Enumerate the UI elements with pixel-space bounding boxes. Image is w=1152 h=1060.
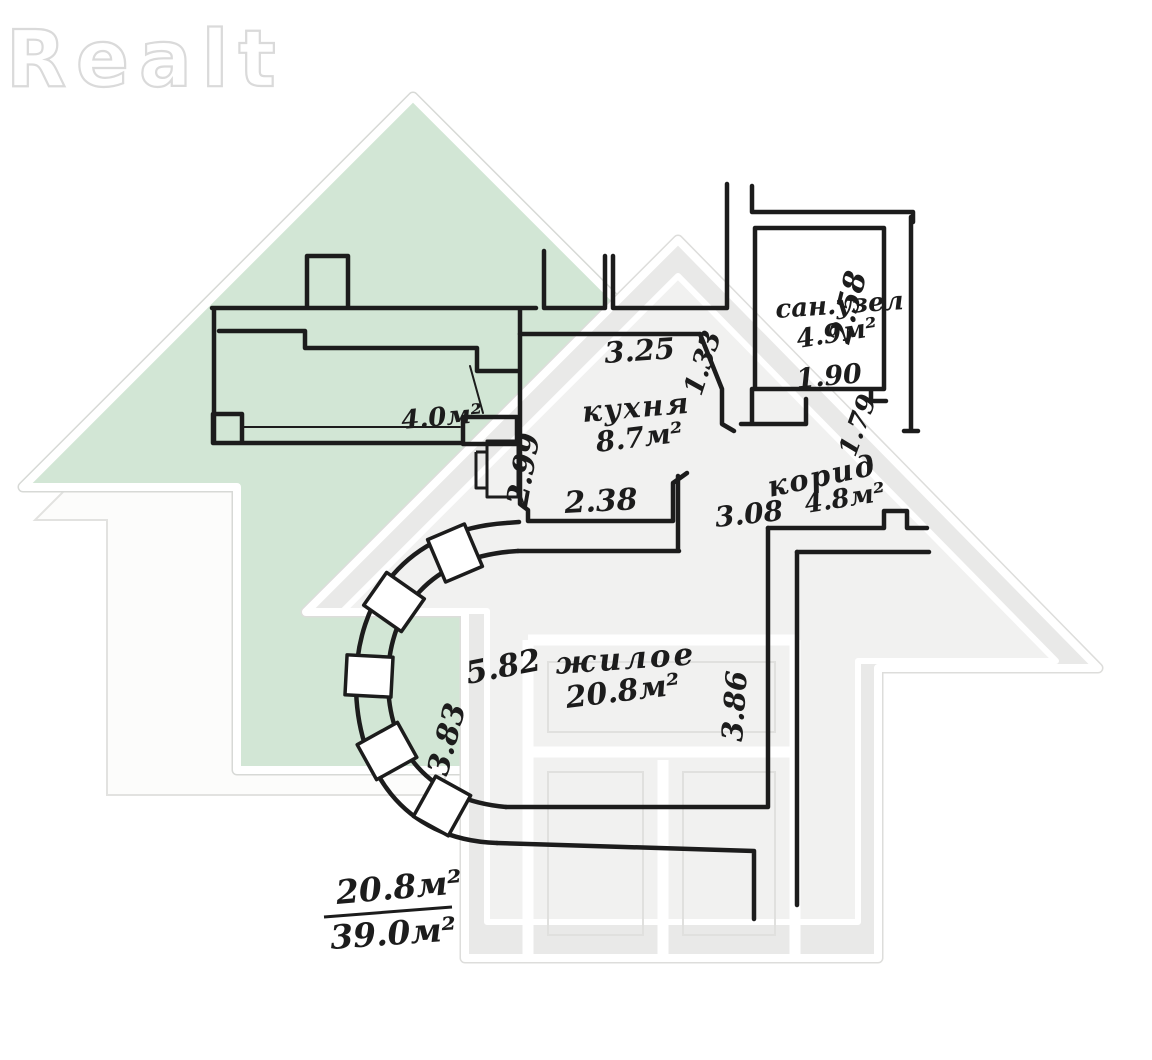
- dim-kitchen-bottom: 2.38: [563, 482, 639, 521]
- floor-plan-svg: Realt 4.0м² кухня 8.7м² сан.узел 4.9м²: [0, 0, 1152, 1060]
- dim-bath-door: 1.90: [795, 358, 863, 395]
- realt-logo: Realt: [6, 15, 286, 105]
- floor-plan-scan: Realt 4.0м² кухня 8.7м² сан.узел 4.9м²: [0, 0, 1152, 1060]
- dim-living-height: 3.86: [715, 670, 754, 743]
- dim-top: 3.25: [603, 331, 676, 370]
- total-living-area: 20.8м²: [333, 862, 463, 912]
- area-totals: 20.8м² 39.0м²: [324, 862, 463, 957]
- total-overall-area: 39.0м²: [329, 909, 458, 957]
